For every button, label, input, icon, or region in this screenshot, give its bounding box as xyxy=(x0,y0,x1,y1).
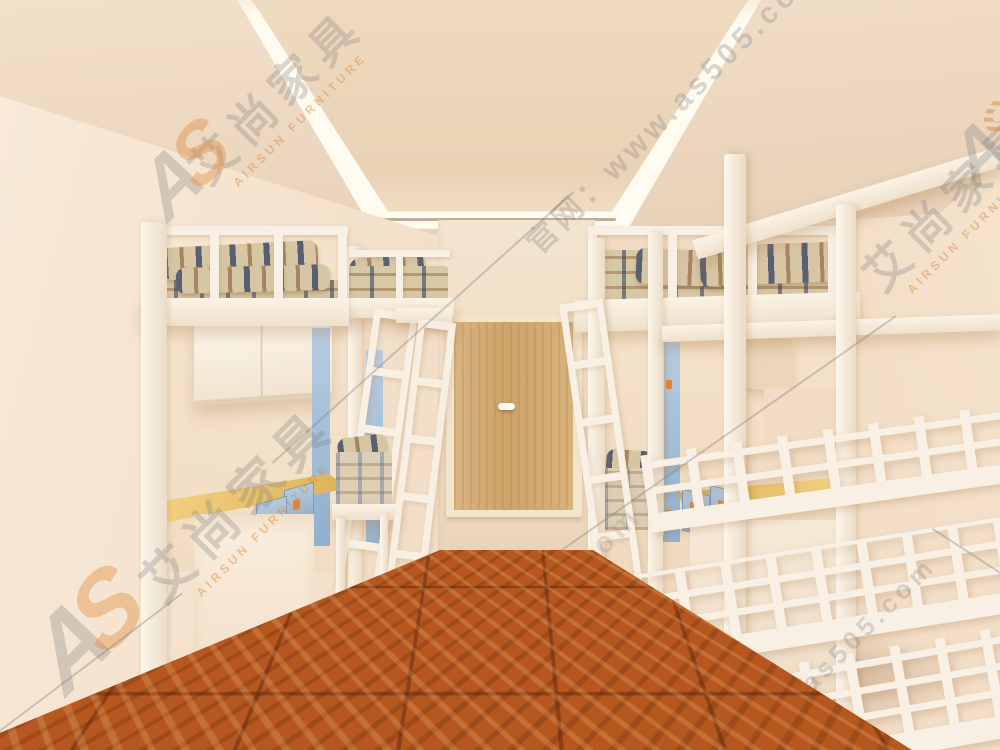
door xyxy=(454,322,573,510)
bed-post xyxy=(141,222,167,694)
door-frame xyxy=(446,315,582,517)
door-handle xyxy=(498,403,515,410)
drawer-label xyxy=(293,499,300,511)
drawer-label xyxy=(666,380,672,389)
lower-bunk-mattress xyxy=(336,452,392,508)
left-lower-cabinet xyxy=(194,514,314,690)
bed-beam xyxy=(141,298,349,326)
bed-leg xyxy=(336,518,345,638)
bed-leg xyxy=(380,514,388,618)
left-wardrobe-panel xyxy=(312,328,330,546)
scene-root: 艾尚家具 AIRSUN FURNITURE AS 官网：www.as505.co… xyxy=(0,0,1000,750)
